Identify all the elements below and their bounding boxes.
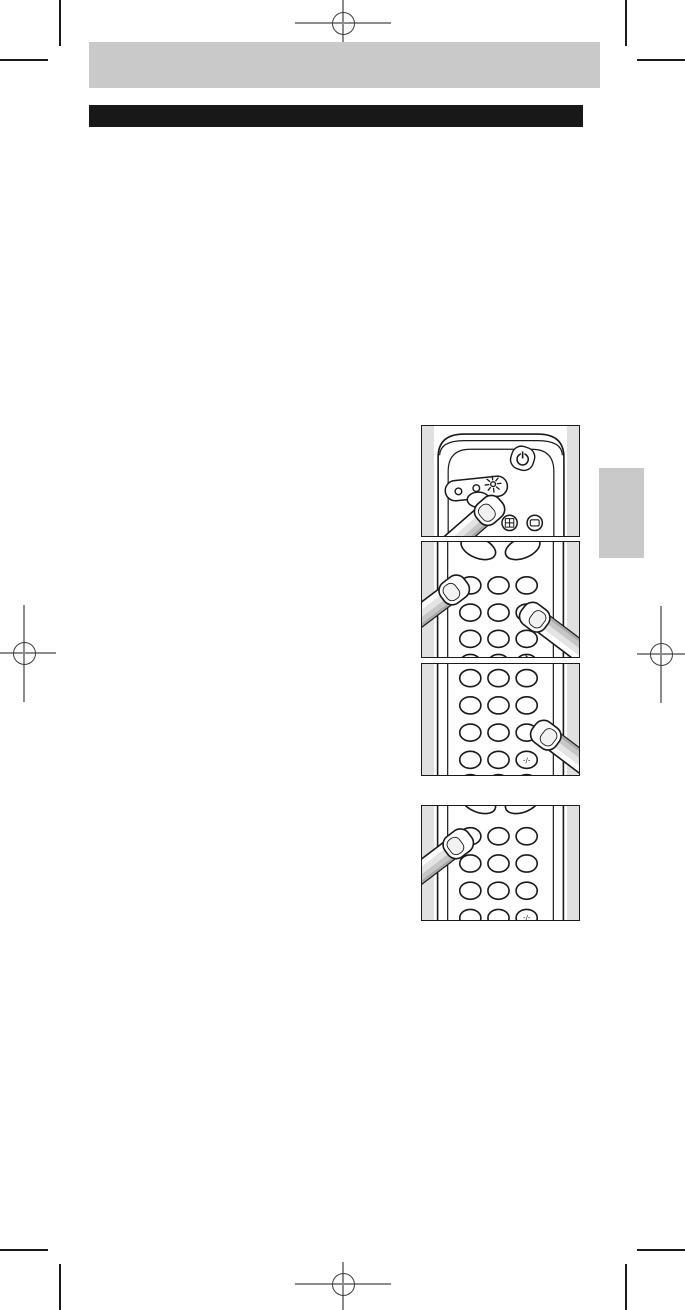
keypad-button: [516, 855, 537, 872]
keypad-button: [516, 577, 537, 594]
rocker-button: [502, 806, 543, 818]
keypad-button: [516, 630, 537, 647]
led-dot: [473, 485, 480, 492]
keypad-button: [488, 697, 509, 714]
illustration-remote-head: [421, 425, 580, 537]
illustration-keypad-top-left: -/-: [421, 805, 580, 921]
keypad-button: [488, 577, 509, 594]
keypad-button: [516, 670, 537, 687]
led-dot: [455, 488, 462, 495]
illustration-keypad-dash-key: -/-: [421, 663, 580, 776]
display-icon: [527, 515, 542, 530]
crop-mark-top-left-h: [0, 59, 48, 61]
keypad-button: [460, 724, 481, 741]
crop-mark-bottom-left-h: [0, 1249, 48, 1251]
margin-right: [567, 426, 579, 536]
dash-slash-dash-label: -/-: [523, 913, 531, 920]
keypad-button: [516, 774, 537, 775]
keypad-button: [488, 751, 509, 768]
crop-mark-top-left-v: [59, 0, 61, 46]
margin-left: [422, 664, 434, 775]
keypad-button: [488, 855, 509, 872]
margin-right: [567, 806, 579, 920]
chapter-tab: [599, 468, 644, 558]
keypad-button: [460, 751, 481, 768]
rocker-button: [458, 542, 499, 564]
keypad-button: [488, 882, 509, 899]
crop-mark-top-right-v: [625, 0, 627, 46]
plus-grid-icon: [502, 515, 517, 530]
keypad-button: [460, 882, 481, 899]
keypad-button: [460, 654, 481, 657]
keypad-button: [516, 828, 537, 845]
keypad-button: [460, 697, 481, 714]
header-band: [89, 42, 600, 88]
keypad-button: [488, 670, 509, 687]
keypad-button: [516, 882, 537, 899]
rocker-button: [502, 542, 543, 564]
keypad-button: [460, 630, 481, 647]
crop-mark-bottom-right-v: [625, 1264, 627, 1310]
keypad-button: [516, 697, 537, 714]
title-band: [89, 105, 583, 127]
keypad-button: [488, 774, 509, 775]
illustration-keypad-two-fingers: [421, 541, 580, 658]
rocker-button: [458, 806, 499, 818]
keypad-button: [488, 654, 509, 657]
keypad-button: [460, 855, 481, 872]
keypad-button: [488, 630, 509, 647]
keypad-button: [460, 774, 481, 775]
keypad-button: [460, 909, 481, 920]
crop-mark-bottom-right-h: [637, 1249, 685, 1251]
keypad-button: [488, 909, 509, 920]
keypad-button: [488, 828, 509, 845]
margin-left: [422, 426, 434, 536]
dash-slash-dash-label: -/-: [523, 755, 531, 764]
crop-mark-bottom-left-v: [59, 1264, 61, 1310]
keypad-button: [488, 604, 509, 621]
crop-mark-top-right-h: [637, 59, 685, 61]
keypad-button: [488, 724, 509, 741]
keypad-button: [460, 670, 481, 687]
manual-page: -/-: [0, 0, 685, 1310]
keypad-button: [460, 604, 481, 621]
